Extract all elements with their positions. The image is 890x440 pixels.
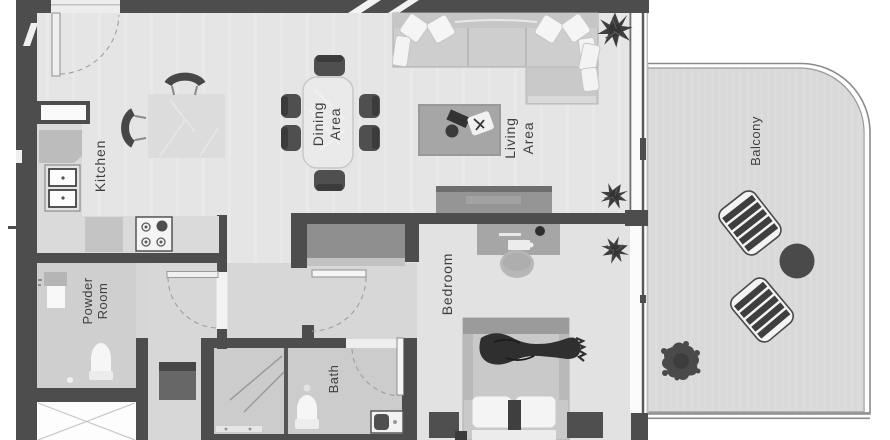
- svg-text:Powder: Powder: [80, 277, 95, 324]
- svg-text:Balcony: Balcony: [748, 116, 763, 166]
- svg-text:Bedroom: Bedroom: [439, 253, 455, 315]
- svg-text:Room: Room: [95, 283, 110, 320]
- svg-text:Dining: Dining: [310, 102, 326, 147]
- svg-text:Area: Area: [520, 122, 536, 155]
- svg-text:Bath: Bath: [326, 365, 341, 394]
- svg-text:Living: Living: [502, 117, 518, 158]
- svg-text:Area: Area: [327, 108, 343, 141]
- svg-text:Kitchen: Kitchen: [92, 140, 108, 192]
